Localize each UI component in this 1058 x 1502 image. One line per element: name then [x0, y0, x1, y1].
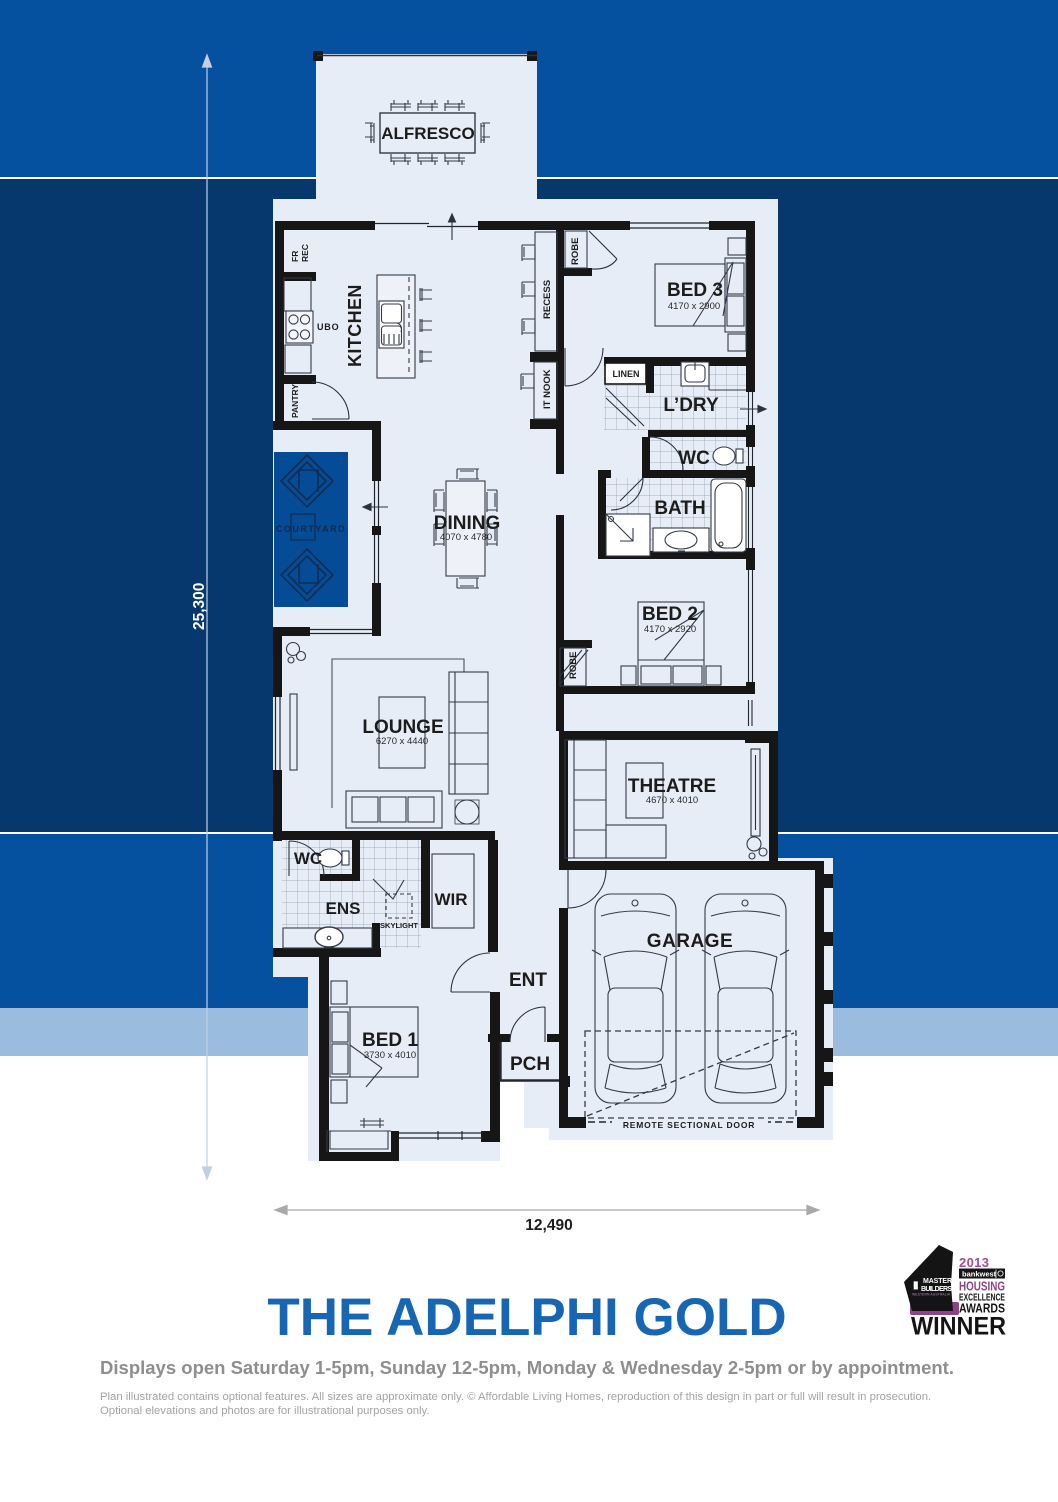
- svg-text:WC: WC: [678, 448, 710, 469]
- svg-text:4170 x 2900: 4170 x 2900: [668, 301, 720, 312]
- svg-text:REMOTE SECTIONAL DOOR: REMOTE SECTIONAL DOOR: [623, 1120, 755, 1130]
- svg-text:ROBE: ROBE: [570, 238, 581, 265]
- svg-text:ROBE: ROBE: [568, 652, 579, 679]
- svg-text:DINING: DINING: [434, 513, 501, 534]
- svg-text:BED 2: BED 2: [642, 604, 698, 625]
- svg-text:REC: REC: [300, 244, 310, 262]
- svg-text:UBO: UBO: [317, 322, 339, 332]
- svg-text:IT NOOK: IT NOOK: [542, 369, 553, 409]
- svg-text:MASTER: MASTER: [923, 1278, 952, 1285]
- svg-text:ENT: ENT: [509, 970, 547, 991]
- svg-text:3730 x 4010: 3730 x 4010: [364, 1050, 416, 1061]
- svg-text:WINNER: WINNER: [911, 1313, 1006, 1341]
- svg-text:COURTYARD: COURTYARD: [276, 524, 346, 534]
- svg-text:FR: FR: [290, 251, 300, 262]
- svg-text:ALFRESCO: ALFRESCO: [381, 124, 475, 143]
- svg-text:BED 3: BED 3: [667, 280, 723, 301]
- svg-text:12,490: 12,490: [525, 1217, 572, 1234]
- svg-text:BED 1: BED 1: [362, 1030, 418, 1051]
- svg-text:KITCHEN: KITCHEN: [345, 284, 365, 367]
- svg-text:GARAGE: GARAGE: [647, 931, 733, 952]
- svg-text:ENS: ENS: [326, 899, 361, 918]
- svg-text:4070 x 4780: 4070 x 4780: [440, 532, 492, 543]
- svg-text:WC: WC: [294, 849, 322, 868]
- svg-text:SKYLIGHT: SKYLIGHT: [380, 921, 418, 930]
- svg-text:WIR: WIR: [434, 890, 467, 909]
- svg-text:2013: 2013: [959, 1255, 989, 1270]
- svg-text:RECESS: RECESS: [542, 280, 553, 319]
- svg-text:6270 x 4440: 6270 x 4440: [376, 736, 428, 747]
- svg-text:WESTERN AUSTRALIA: WESTERN AUSTRALIA: [912, 1293, 951, 1297]
- svg-text:LINEN: LINEN: [613, 369, 640, 379]
- svg-text:▮: ▮: [913, 1280, 919, 1291]
- svg-text:BATH: BATH: [654, 498, 705, 519]
- svg-text:LOUNGE: LOUNGE: [362, 717, 443, 738]
- svg-text:bankwest: bankwest: [962, 1270, 997, 1279]
- svg-text:THEATRE: THEATRE: [628, 776, 716, 797]
- svg-text:PANTRY: PANTRY: [290, 384, 300, 418]
- svg-text:PCH: PCH: [510, 1054, 550, 1075]
- svg-text:4170 x 2920: 4170 x 2920: [644, 624, 696, 635]
- svg-text:L’DRY: L’DRY: [663, 395, 719, 416]
- svg-text:4670 x 4010: 4670 x 4010: [646, 795, 698, 806]
- svg-text:25,300: 25,300: [191, 583, 208, 630]
- svg-text:HOUSING: HOUSING: [959, 1280, 1005, 1294]
